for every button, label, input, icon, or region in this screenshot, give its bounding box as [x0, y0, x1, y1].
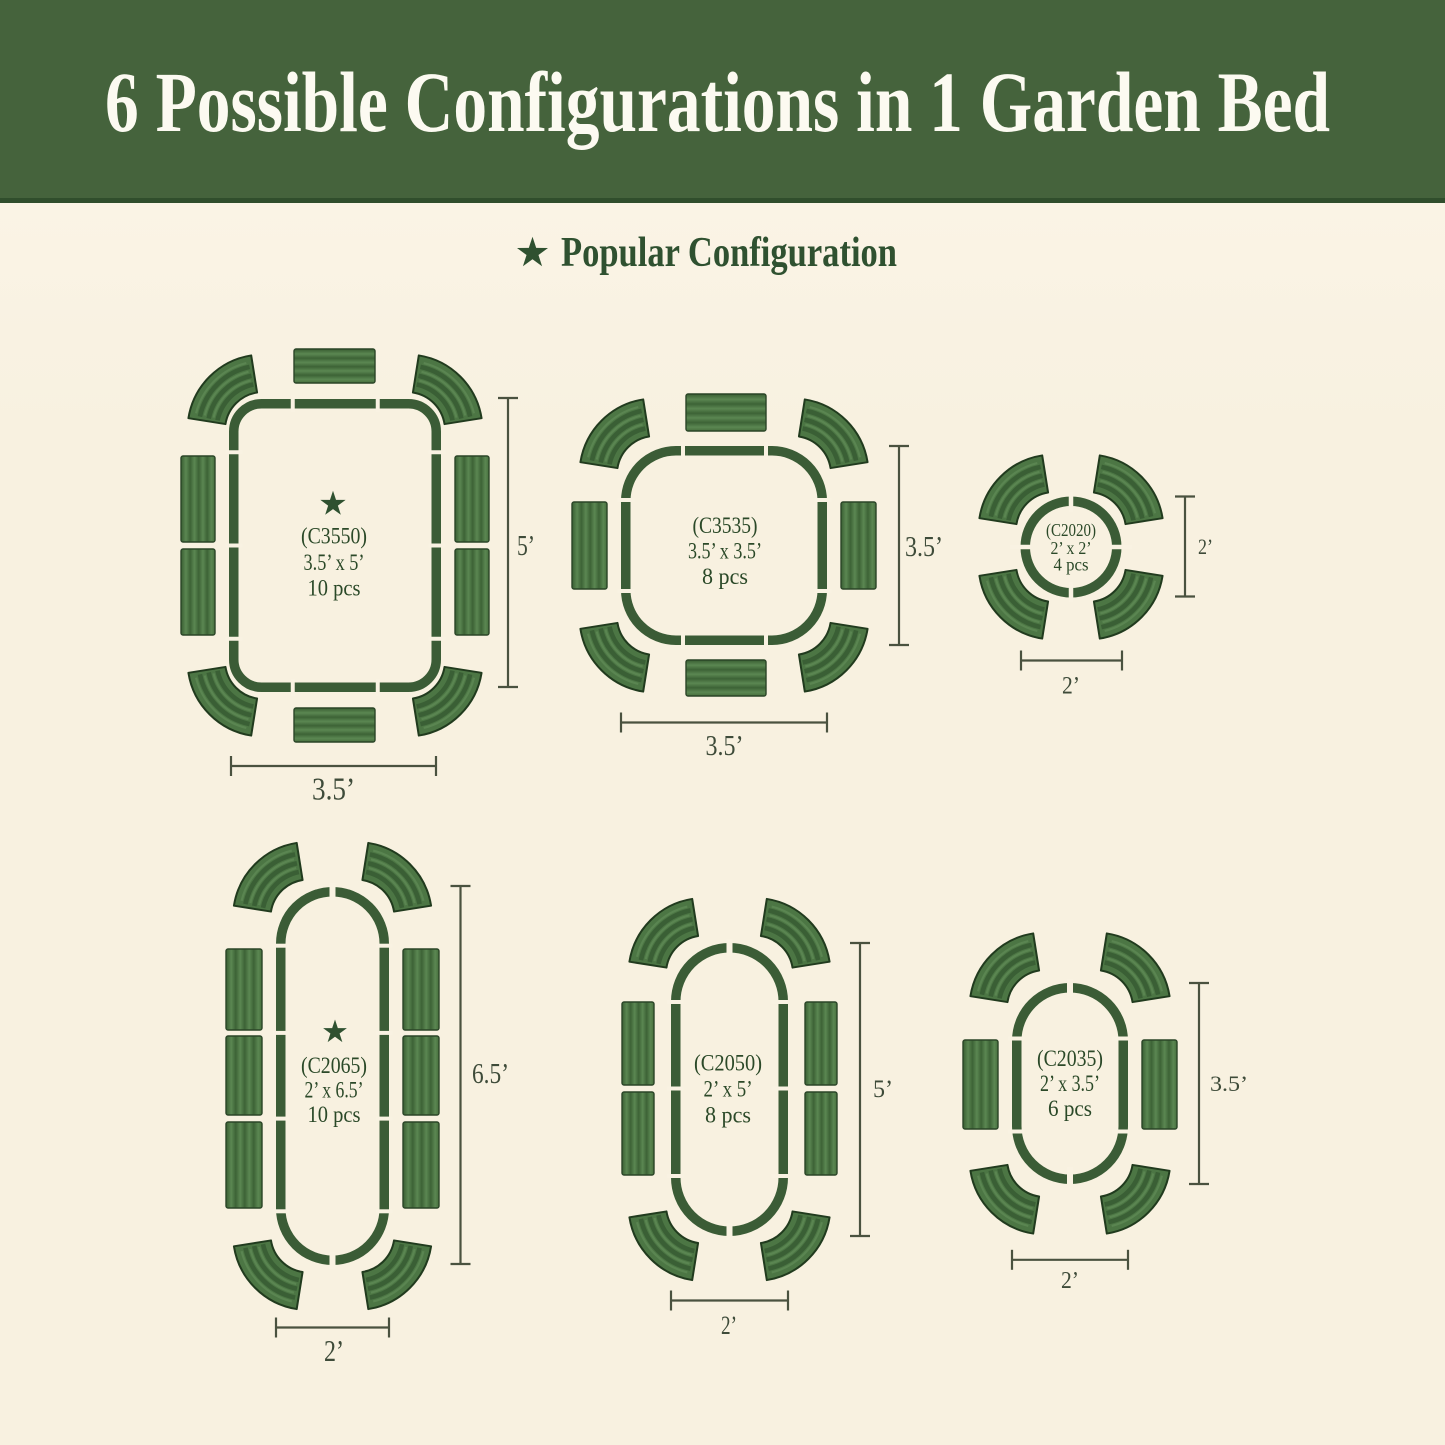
- svg-text:2’ x 5’: 2’ x 5’: [704, 1077, 753, 1103]
- svg-text:3.5’: 3.5’: [1210, 1071, 1248, 1096]
- svg-text:3.5’: 3.5’: [905, 532, 943, 563]
- svg-text:3.5’: 3.5’: [706, 730, 744, 762]
- svg-text:5’: 5’: [517, 530, 535, 562]
- svg-text:2’ x 6.5’: 2’ x 6.5’: [305, 1078, 364, 1104]
- svg-text:10 pcs: 10 pcs: [308, 576, 361, 602]
- svg-text:(C2065): (C2065): [301, 1053, 367, 1079]
- svg-text:8 pcs: 8 pcs: [702, 564, 748, 590]
- svg-text:3.5’: 3.5’: [312, 771, 355, 807]
- svg-text:(C2050): (C2050): [694, 1051, 762, 1077]
- svg-text:2’: 2’: [324, 1333, 344, 1368]
- svg-text:2’: 2’: [721, 1310, 737, 1340]
- svg-text:8 pcs: 8 pcs: [705, 1103, 751, 1129]
- svg-text:6 Possible Configurations in 1: 6 Possible Configurations in 1 Garden Be…: [105, 54, 1330, 150]
- svg-text:6 pcs: 6 pcs: [1048, 1096, 1092, 1122]
- svg-text:2’ x 3.5’: 2’ x 3.5’: [1040, 1071, 1100, 1097]
- svg-text:4 pcs: 4 pcs: [1054, 555, 1089, 575]
- svg-text:(C3535): (C3535): [693, 513, 758, 539]
- svg-text:2’: 2’: [1062, 673, 1080, 700]
- svg-text:3.5’ x 3.5’: 3.5’ x 3.5’: [688, 539, 762, 565]
- svg-text:(C3550): (C3550): [301, 524, 367, 550]
- svg-text:2’: 2’: [1198, 534, 1213, 559]
- svg-text:5’: 5’: [873, 1074, 893, 1103]
- svg-text:Popular Configuration: Popular Configuration: [561, 230, 897, 276]
- svg-text:(C2035): (C2035): [1037, 1046, 1103, 1072]
- svg-text:6.5’: 6.5’: [472, 1058, 509, 1090]
- svg-text:2’: 2’: [1061, 1268, 1079, 1294]
- svg-text:3.5’ x 5’: 3.5’ x 5’: [304, 550, 365, 576]
- svg-text:10 pcs: 10 pcs: [308, 1102, 361, 1128]
- svg-text:(C2020): (C2020): [1046, 520, 1096, 540]
